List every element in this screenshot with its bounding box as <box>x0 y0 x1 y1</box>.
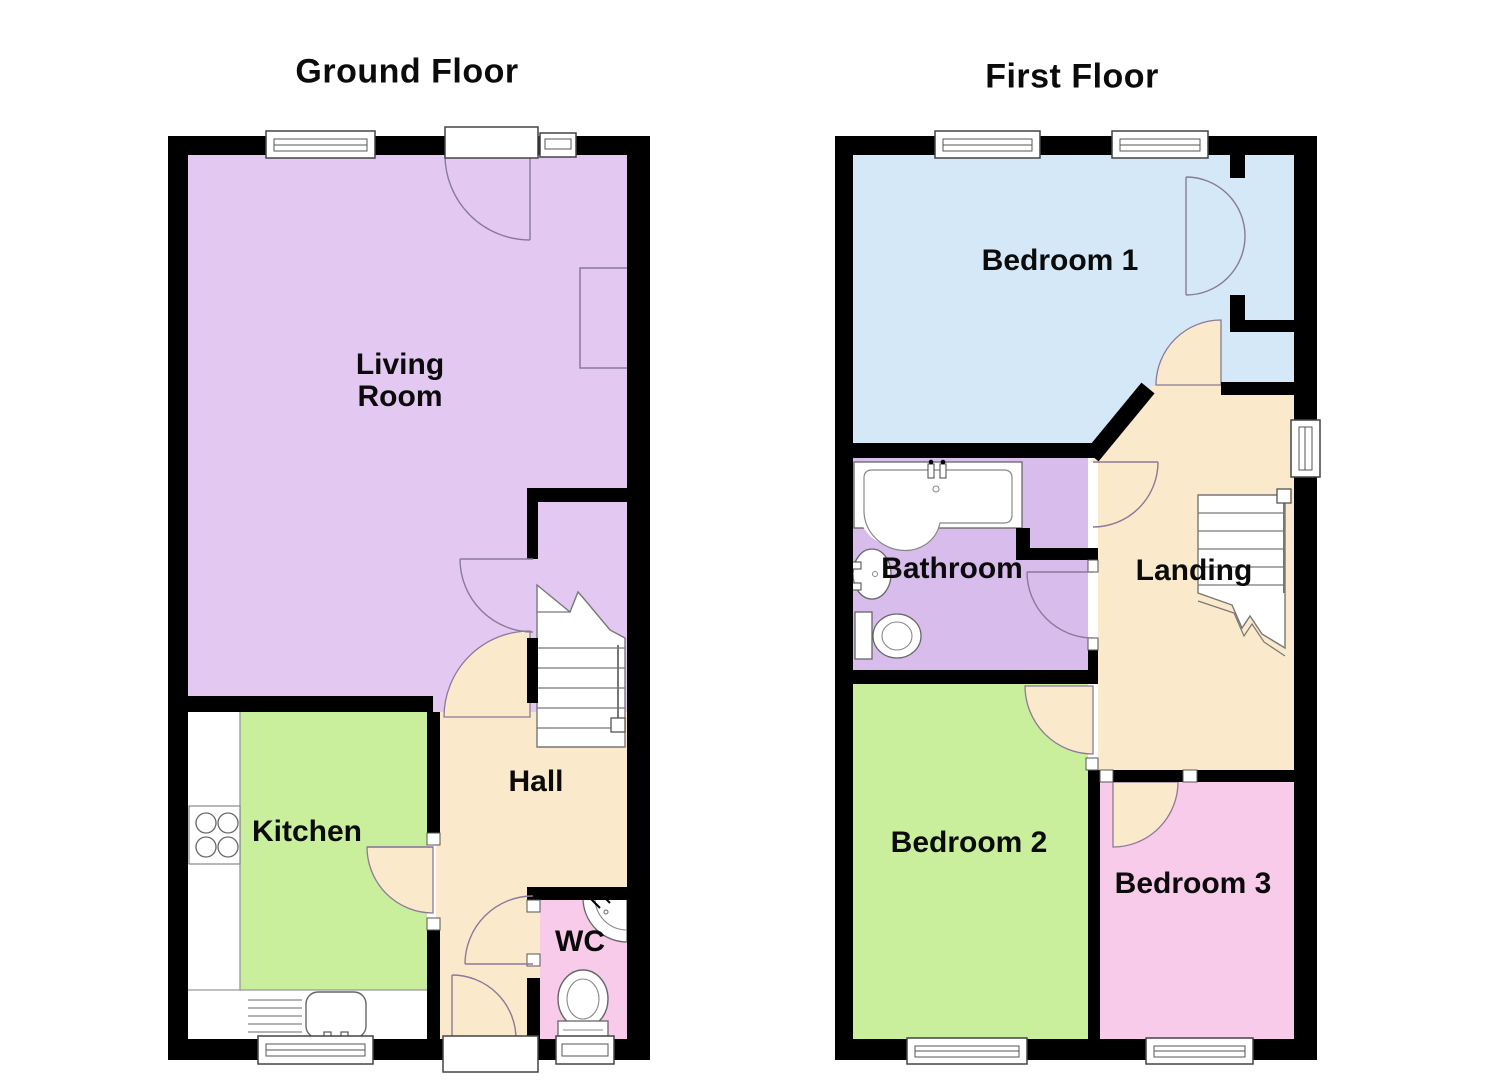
bedroom3-label: Bedroom 3 <box>1115 868 1272 900</box>
landing-window <box>1291 420 1320 477</box>
living-room-label: Living Room <box>335 349 465 413</box>
bathroom-toilet <box>855 612 921 659</box>
kitchen-label: Kitchen <box>252 816 362 848</box>
floorplan-drawing <box>0 0 1485 1080</box>
newel-post <box>1277 489 1291 503</box>
first-floor-title: First Floor <box>985 58 1159 97</box>
bedroom1-label: Bedroom 1 <box>982 245 1139 277</box>
bedroom2-window <box>907 1038 1027 1064</box>
small-window-top <box>540 133 576 157</box>
floorplan-page: Ground Floor First Floor Living Room Kit… <box>0 0 1485 1080</box>
wc-toilet <box>558 970 608 1039</box>
bedroom1-window-right <box>1112 131 1208 158</box>
wc-window <box>556 1036 614 1064</box>
bedroom3-window <box>1146 1038 1253 1064</box>
kitchen-window <box>258 1036 373 1064</box>
bathroom-label: Bathroom <box>881 553 1023 585</box>
hob <box>189 806 240 864</box>
front-door-frame <box>443 1036 538 1072</box>
hall-label: Hall <box>508 766 563 798</box>
wc-label: WC <box>555 926 605 958</box>
living-room-window <box>266 131 375 158</box>
landing-label: Landing <box>1136 555 1253 587</box>
bedroom1-window-left <box>935 131 1040 158</box>
bedroom2-label: Bedroom 2 <box>891 827 1048 859</box>
back-door-frame <box>445 127 538 158</box>
newel-post <box>611 718 625 732</box>
ground-floor-title: Ground Floor <box>295 53 518 92</box>
